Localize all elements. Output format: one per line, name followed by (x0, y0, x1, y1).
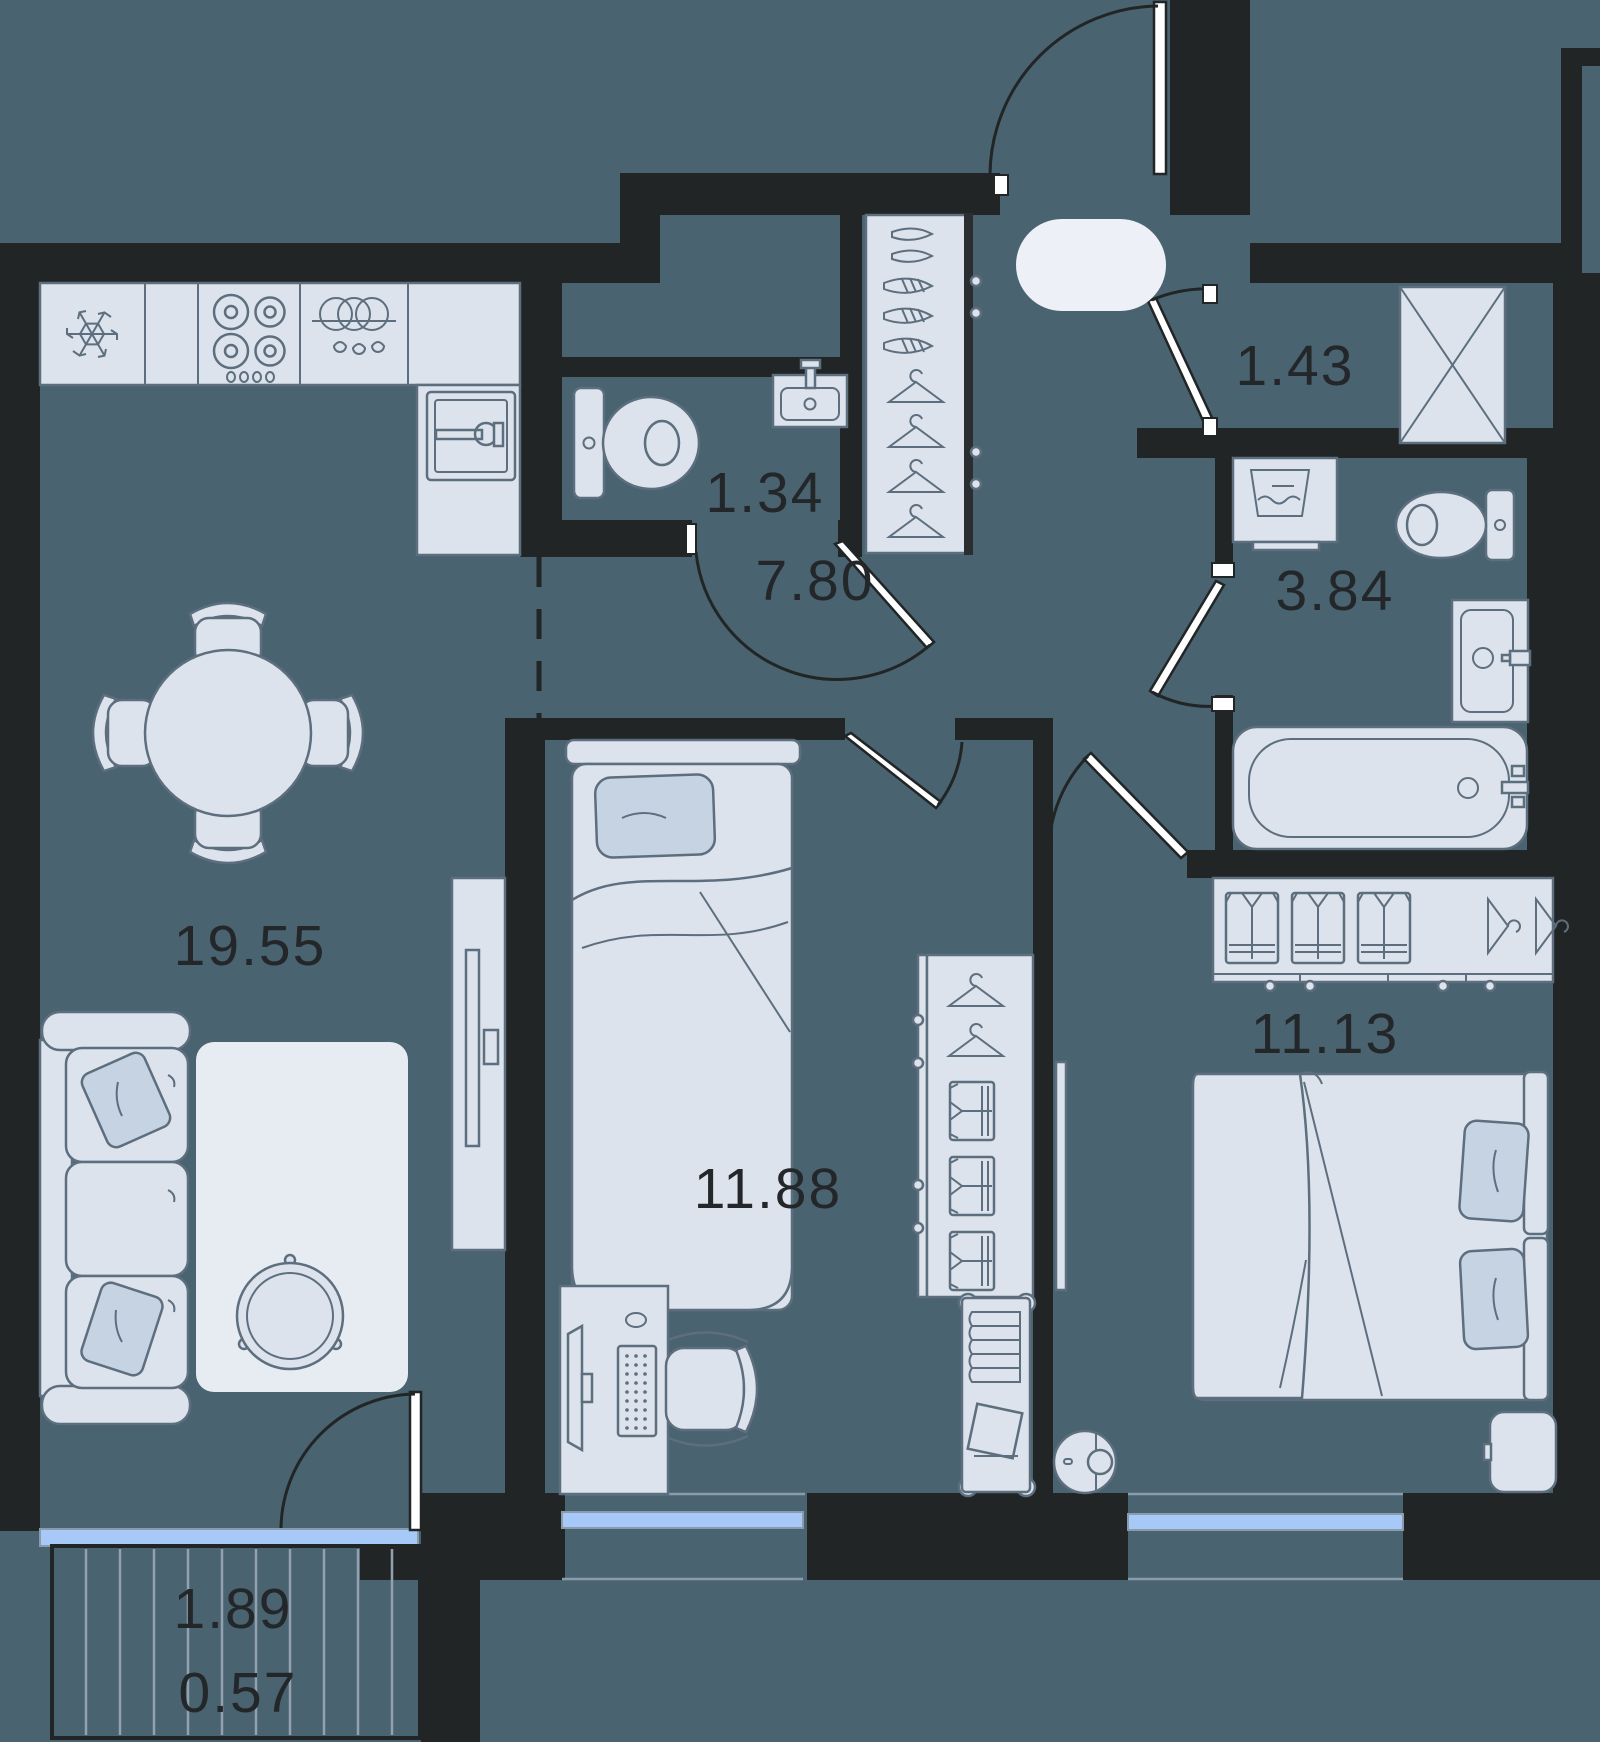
washing-machine-icon (1233, 458, 1337, 550)
storage-door-jamb-bottom (1203, 418, 1217, 436)
entrance-door-leaf (1154, 2, 1166, 174)
area-label-living: 19.55 (174, 914, 327, 978)
wall-top-kitchen (0, 243, 657, 283)
area-label-bedroom2: 11.13 (1251, 1002, 1399, 1066)
storage-area (1400, 287, 1505, 443)
bed-pillow (595, 774, 716, 858)
entrance-mat (1016, 219, 1166, 311)
area-label-storage: 1.43 (1236, 334, 1355, 398)
wall-top-hallway (620, 173, 1000, 215)
window-bedroom1 (562, 1512, 803, 1528)
wall-left-outer (0, 243, 40, 1531)
wall-top-storage (1250, 243, 1563, 283)
double-bed-icon (1193, 1072, 1548, 1400)
desk-computer-icon (560, 1286, 668, 1494)
bedroom1-wardrobe (913, 955, 1033, 1297)
wall-bottom-pier-left (480, 1493, 565, 1580)
balcony-door-leaf (410, 1392, 421, 1530)
wall-entrance-block (1170, 0, 1250, 215)
robot-vacuum-icon (1054, 1431, 1116, 1493)
kitchen-sink-icon (427, 392, 515, 480)
bathroom-door-jamb-bottom (1212, 697, 1234, 711)
storage-crossbox-icon (1400, 287, 1505, 443)
area-label-hallway: 7.80 (756, 549, 875, 613)
wall-bathroom-left-lower (1215, 695, 1233, 850)
bathroom-sink-icon (1452, 600, 1530, 722)
keyboard-keys (625, 1354, 647, 1430)
floorplan-page: 19.55 7.80 1.34 1.43 3.84 11.88 11.13 1.… (0, 0, 1600, 1742)
tv-console-icon (452, 878, 505, 1250)
hallway-wardrobe-front (964, 213, 973, 555)
sofa-icon (40, 1012, 190, 1424)
single-bed-icon (566, 740, 800, 1310)
dining-table-icon (145, 650, 311, 816)
office-chair-icon (666, 1332, 757, 1445)
wall-right-outer (1553, 273, 1600, 1580)
area-label-bathroom: 3.84 (1276, 559, 1395, 623)
bathtub-icon (1233, 727, 1528, 849)
wall-right-thin (1561, 48, 1582, 283)
book-trolley-icon (959, 1294, 1035, 1496)
wall-bottom-pier-right (1403, 1493, 1600, 1580)
nightstand-icon (1490, 1412, 1556, 1492)
wall-wc-bottom (520, 520, 692, 557)
area-label-wc: 1.34 (706, 461, 825, 525)
toilet-icon-bathroom (1396, 490, 1514, 560)
floorplan-drawing: 19.55 7.80 1.34 1.43 3.84 11.88 11.13 1.… (0, 0, 1600, 1742)
folded-shirt-icon (950, 1082, 994, 1290)
tv-icon (466, 950, 479, 1146)
window-balcony-front (40, 1529, 418, 1546)
hallway-wardrobe (866, 215, 966, 553)
wall-living-bedroom1 (505, 718, 545, 1580)
bedroom2-wardrobe (1213, 878, 1568, 991)
wall-bathroom-bottom (1215, 850, 1553, 878)
bed-blanket (1193, 1074, 1310, 1398)
window-bedroom2 (1128, 1514, 1403, 1530)
bathroom-door-jamb-top (1212, 563, 1234, 577)
nightstand-handle (1484, 1444, 1491, 1460)
wc-door-jamb (686, 524, 696, 554)
wall-balcony-right (421, 1493, 480, 1742)
area-label-bedroom1: 11.88 (694, 1157, 842, 1221)
mirror (1056, 1062, 1066, 1290)
wall-bottom-pier-middle (807, 1493, 1128, 1580)
wall-bedroom1-top-left (505, 718, 845, 740)
folded-shirt-icon (1226, 893, 1410, 963)
area-label-balcony-counted: 0.57 (179, 1661, 298, 1725)
entrance-door-jamb (994, 175, 1008, 195)
storage-door-jamb-top (1203, 285, 1217, 303)
wall-wc-left (520, 283, 562, 555)
area-label-balcony-full: 1.89 (174, 1577, 293, 1641)
